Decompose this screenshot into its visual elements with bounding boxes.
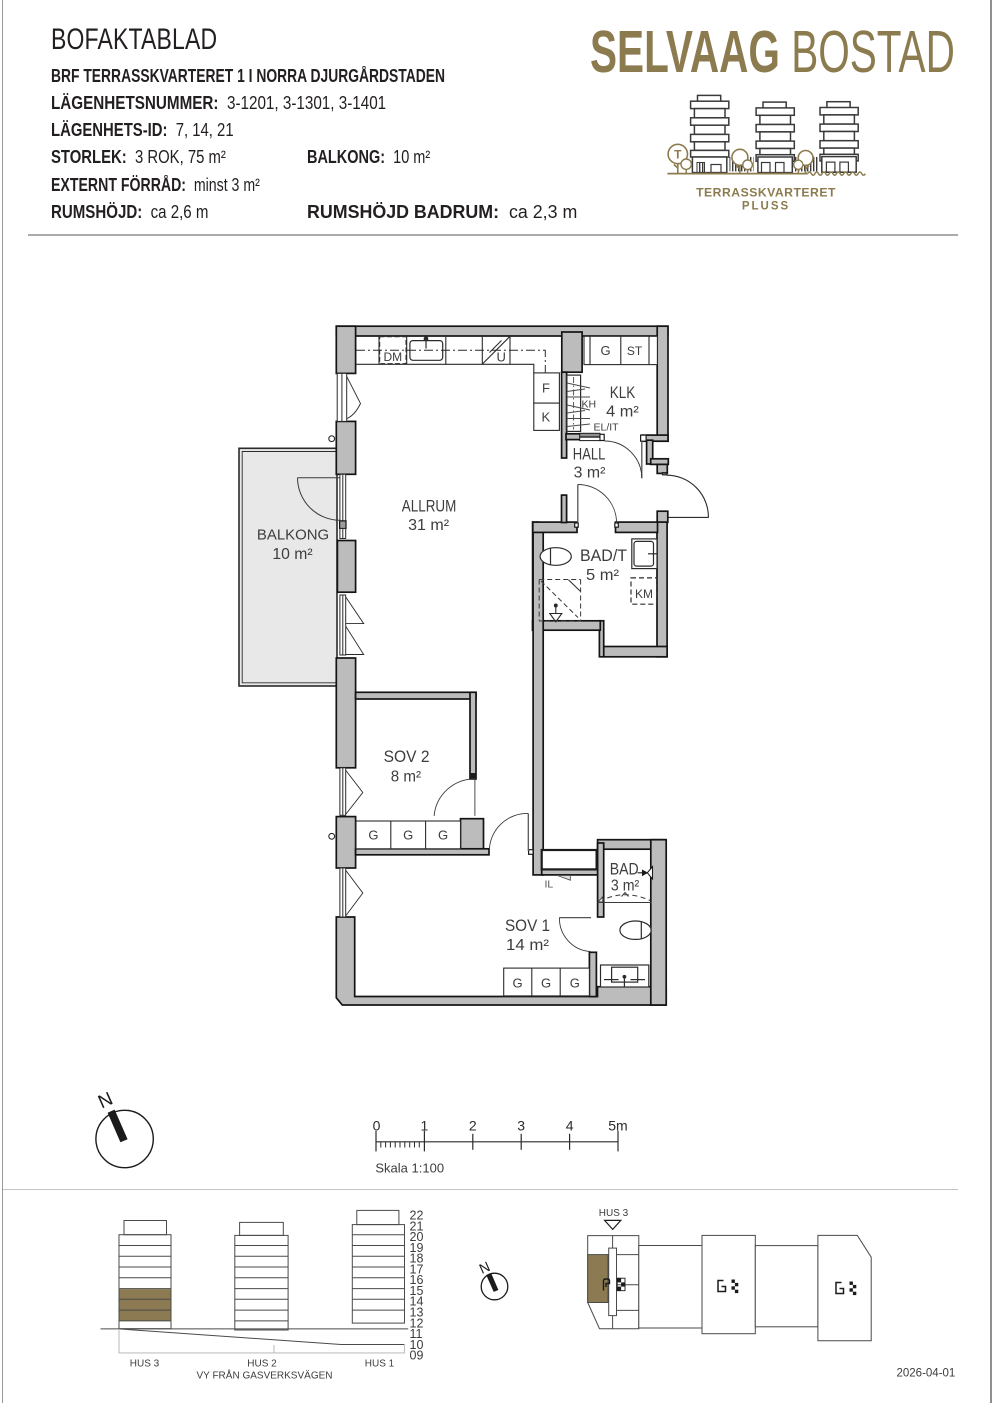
svg-text:HUS 3: HUS 3 xyxy=(599,1208,629,1219)
svg-text:SOV 2: SOV 2 xyxy=(384,747,430,766)
svg-text:DM: DM xyxy=(383,350,402,364)
svg-text:G: G xyxy=(570,976,580,991)
svg-text:KH: KH xyxy=(582,399,597,411)
svg-text:10 m²: 10 m² xyxy=(272,546,312,563)
svg-text:SOV 1: SOV 1 xyxy=(505,916,550,935)
svg-text:IL: IL xyxy=(545,879,554,891)
svg-text:ALLRUM: ALLRUM xyxy=(402,497,457,516)
svg-text:KM: KM xyxy=(635,587,653,601)
svg-text:G: G xyxy=(403,828,413,843)
svg-text:EL/IT: EL/IT xyxy=(594,422,620,434)
svg-text:G: G xyxy=(541,976,551,991)
svg-text:VY FRÅN GASVERKSVÄGEN: VY FRÅN GASVERKSVÄGEN xyxy=(197,1368,333,1381)
svg-text:TERRASSKVARTERET: TERRASSKVARTERET xyxy=(696,186,836,200)
svg-text:HUS 2: HUS 2 xyxy=(247,1359,277,1370)
svg-text:HUS 3: HUS 3 xyxy=(130,1359,160,1370)
svg-text:HUS 1: HUS 1 xyxy=(365,1359,395,1370)
svg-text:G: G xyxy=(368,828,378,843)
svg-text:ST: ST xyxy=(627,344,643,358)
svg-text:HALL: HALL xyxy=(573,445,606,464)
svg-text:8 m²: 8 m² xyxy=(391,768,421,785)
svg-text:5 m²: 5 m² xyxy=(586,567,619,584)
svg-text:BALKONG: BALKONG xyxy=(257,528,329,544)
svg-text:G: G xyxy=(438,828,448,843)
svg-text:G: G xyxy=(512,976,522,991)
svg-text:3: 3 xyxy=(517,1118,525,1134)
svg-text:KLK: KLK xyxy=(610,383,636,402)
svg-text:2: 2 xyxy=(469,1118,477,1134)
svg-text:3 m²: 3 m² xyxy=(611,878,639,895)
svg-text:4 m²: 4 m² xyxy=(606,404,639,421)
svg-text:N: N xyxy=(95,1089,116,1114)
svg-text:T: T xyxy=(674,148,682,162)
svg-text:K: K xyxy=(542,410,551,425)
svg-text:1: 1 xyxy=(421,1118,429,1134)
svg-text:3 m²: 3 m² xyxy=(574,465,606,482)
svg-text:0: 0 xyxy=(373,1118,381,1134)
svg-text:2026-04-01: 2026-04-01 xyxy=(897,1368,956,1380)
svg-text:Skala 1:100: Skala 1:100 xyxy=(375,1161,444,1176)
svg-text:G: G xyxy=(600,343,610,358)
svg-text:09: 09 xyxy=(410,1349,424,1363)
svg-text:U: U xyxy=(497,350,506,365)
svg-text:14 m²: 14 m² xyxy=(506,937,549,954)
svg-text:BAD/T: BAD/T xyxy=(580,546,627,565)
svg-text:5m: 5m xyxy=(608,1118,627,1134)
svg-text:F: F xyxy=(542,381,550,396)
svg-text:BAD: BAD xyxy=(610,860,639,879)
svg-text:4: 4 xyxy=(566,1118,574,1134)
svg-text:PLUSS: PLUSS xyxy=(742,201,790,213)
svg-text:31 m²: 31 m² xyxy=(408,517,449,534)
